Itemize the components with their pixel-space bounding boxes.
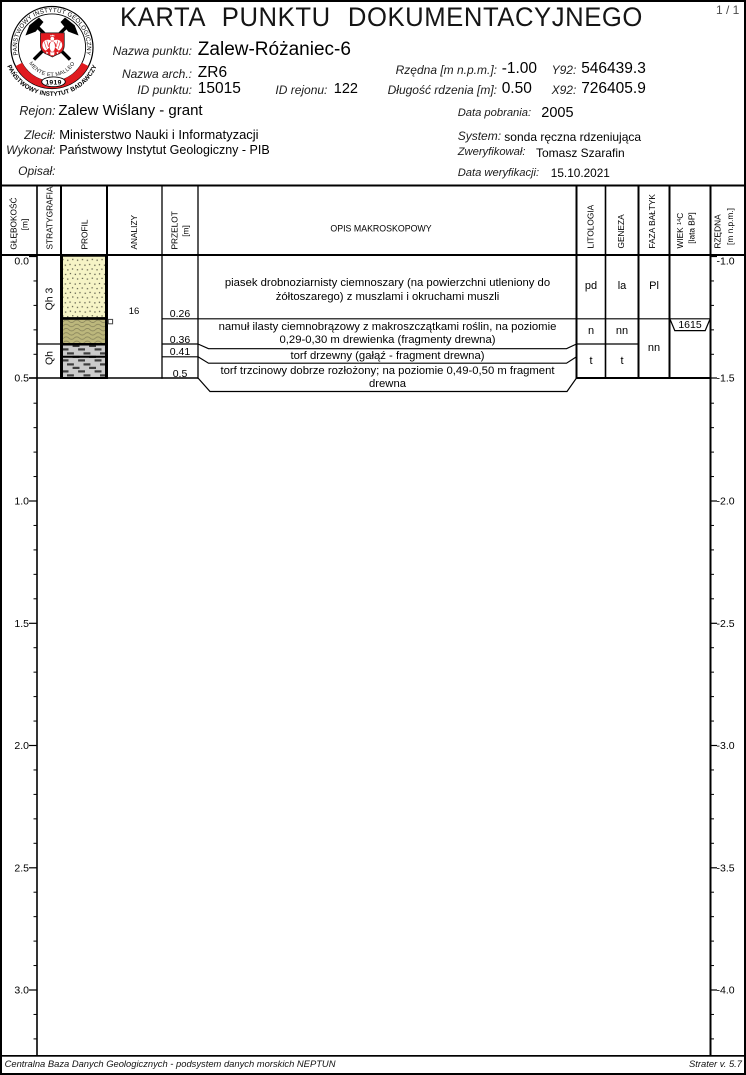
svg-text:0.0: 0.0 [14,256,29,268]
svg-text:1.5: 1.5 [14,618,29,630]
svg-text:[lata BP]: [lata BP] [687,212,697,243]
svg-text:OPIS MAKROSKOPOWY: OPIS MAKROSKOPOWY [330,223,431,233]
svg-text:2.5: 2.5 [14,862,29,874]
svg-text:1.0: 1.0 [14,496,29,508]
svg-text:ANALIZY: ANALIZY [129,214,139,249]
svg-text:PROFIL: PROFIL [80,219,90,249]
svg-text:2.0: 2.0 [14,740,29,752]
svg-text:-2.0: -2.0 [717,496,735,508]
svg-text:Qh: Qh [44,351,56,365]
svg-text:-3.0: -3.0 [717,740,735,752]
svg-text:3.0: 3.0 [14,985,29,997]
svg-text:RZĘDNA: RZĘDNA [713,214,723,249]
svg-text:WIEK 14C: WIEK 14C [675,213,685,249]
svg-text:-2.5: -2.5 [717,618,735,630]
svg-text:STRATYGRAFIA: STRATYGRAFIA [45,186,55,249]
svg-text:[m]: [m] [20,219,30,231]
svg-text:-4.0: -4.0 [717,985,735,997]
svg-text:LITOLOGIA: LITOLOGIA [586,204,596,248]
svg-text:PRZELOT: PRZELOT [170,211,180,249]
svg-text:Qh 3: Qh 3 [44,287,56,310]
svg-text:[m n.p.m.]: [m n.p.m.] [725,208,735,245]
svg-text:0.5: 0.5 [14,373,29,385]
svg-text:[m]: [m] [181,225,191,237]
svg-text:-1.0: -1.0 [717,256,735,268]
svg-text:GENEZA: GENEZA [616,214,626,249]
svg-text:-1.5: -1.5 [717,373,735,385]
svg-text:FAZA BAŁTYK: FAZA BAŁTYK [647,194,657,249]
svg-text:1919: 1919 [45,79,61,86]
svg-text:-3.5: -3.5 [717,862,735,874]
svg-text:GŁĘBOKOŚĆ: GŁĘBOKOŚĆ [8,197,19,249]
